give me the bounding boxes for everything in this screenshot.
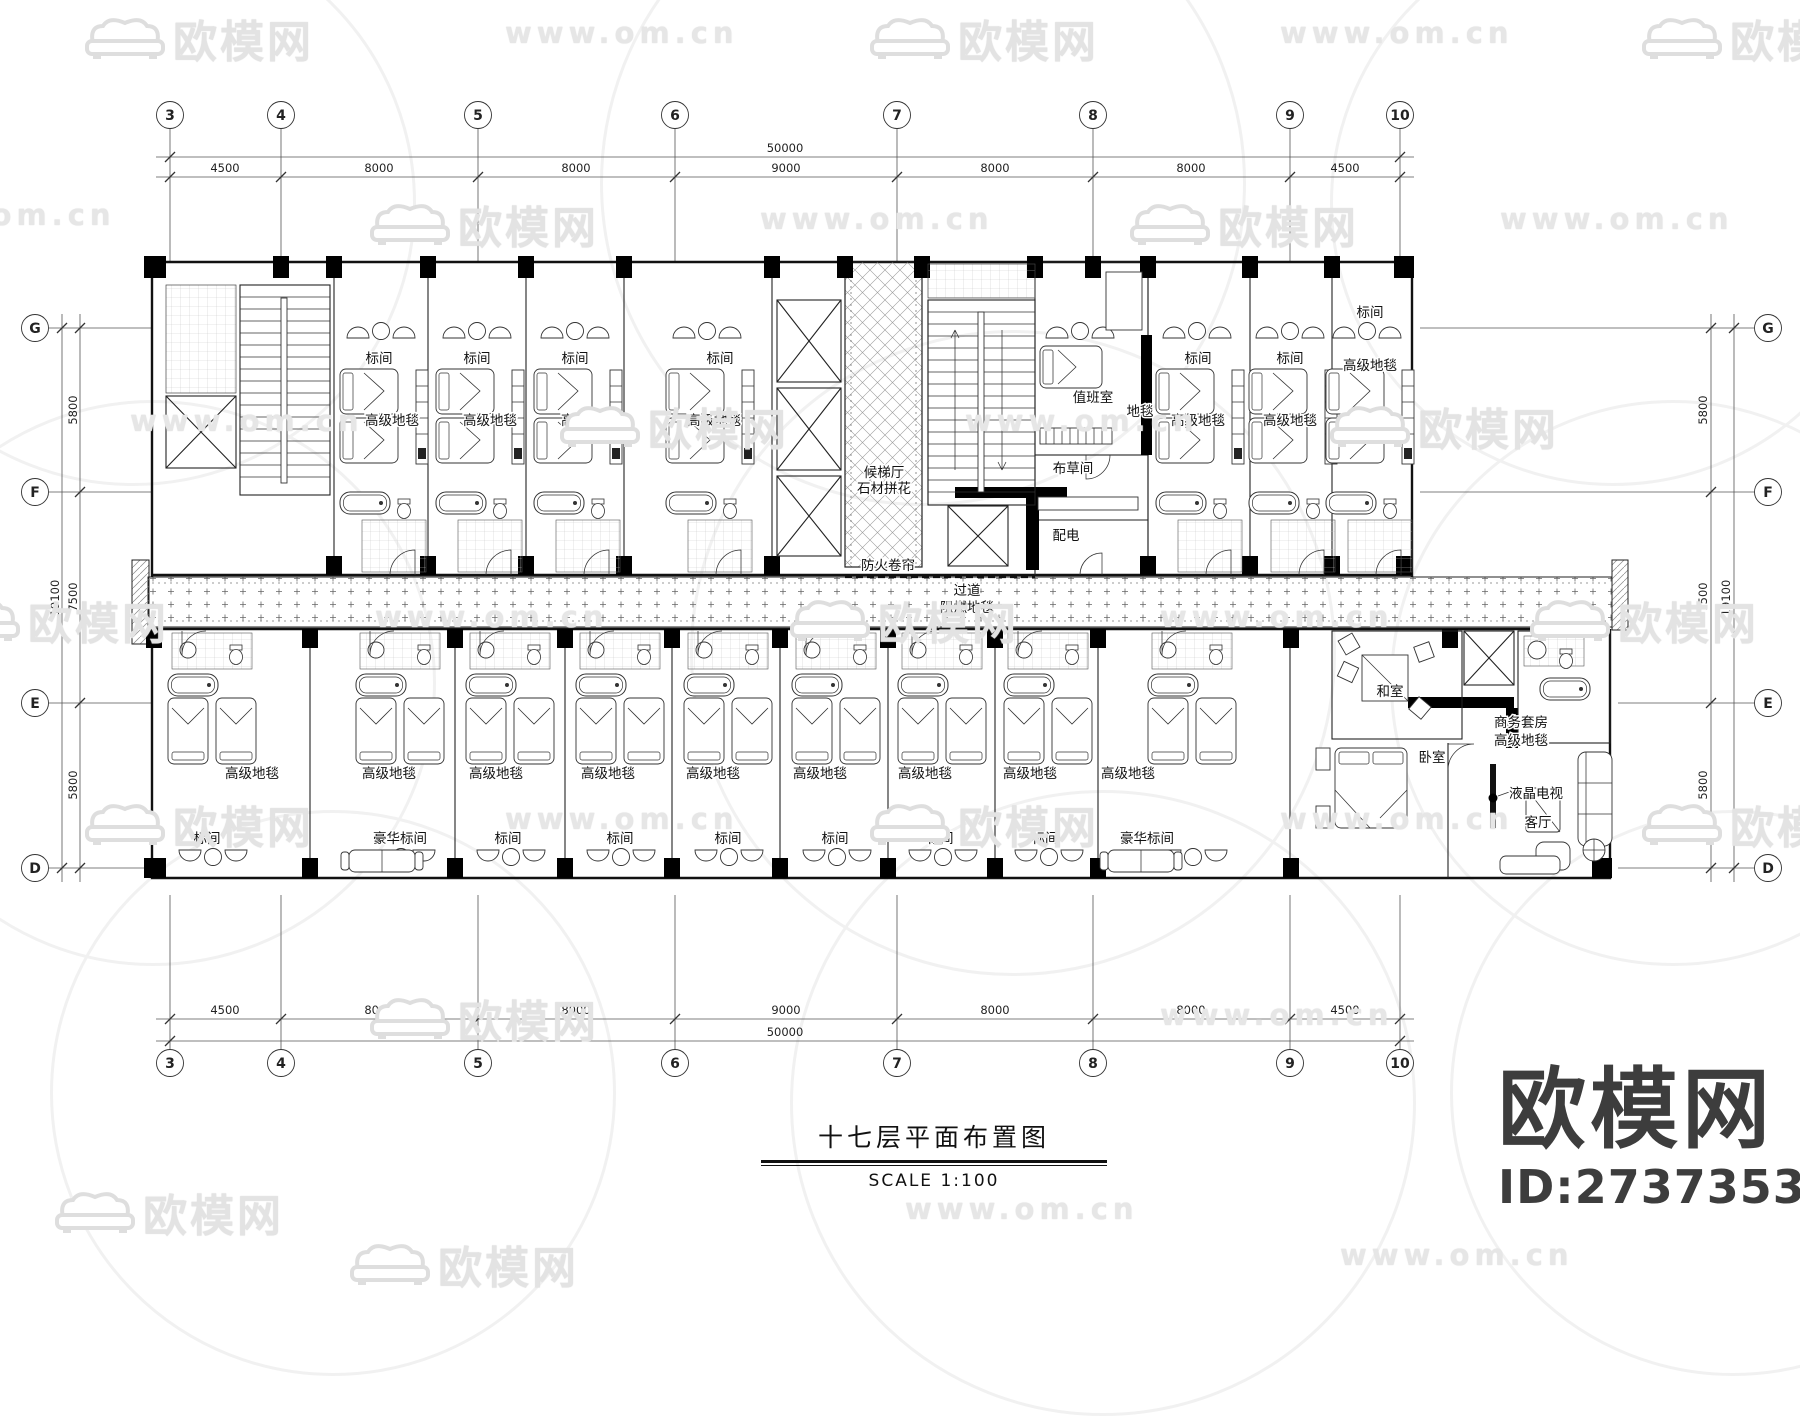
svg-text:9: 9: [1285, 108, 1295, 124]
svg-text:8000: 8000: [1176, 161, 1205, 175]
lower-rooms: [168, 631, 1236, 872]
svg-text:高级地毯: 高级地毯: [898, 765, 952, 782]
svg-text:客厅: 客厅: [1525, 814, 1552, 831]
drawing-title: 十七层平面布置图: [753, 1118, 1115, 1154]
svg-text:10: 10: [1390, 108, 1410, 124]
title-underline-thick: [761, 1160, 1107, 1163]
svg-text:卧室: 卧室: [1419, 749, 1446, 766]
svg-text:4500: 4500: [1330, 161, 1359, 175]
svg-text:8000: 8000: [561, 161, 590, 175]
drawing-title-block: 十七层平面布置图 SCALE 1:100: [753, 1118, 1115, 1191]
drawing-scale: SCALE 1:100: [753, 1171, 1115, 1191]
site-logo: 欧模网 ID:2737353: [1498, 1066, 1800, 1210]
svg-text:标间: 标间: [366, 351, 393, 367]
title-underline-thin: [761, 1165, 1107, 1166]
svg-text:E: E: [30, 696, 40, 712]
svg-text:高级地毯: 高级地毯: [1263, 412, 1317, 429]
svg-text:标间: 标间: [715, 831, 742, 847]
svg-text:高级地毯: 高级地毯: [581, 765, 635, 782]
svg-text:高级地毯: 高级地毯: [463, 412, 517, 429]
svg-text:9000: 9000: [771, 1003, 800, 1017]
svg-text:4500: 4500: [210, 1003, 239, 1017]
svg-text:标间: 标间: [1185, 351, 1212, 367]
svg-text:高级地毯: 高级地毯: [1494, 732, 1548, 749]
svg-text:G: G: [1762, 321, 1774, 337]
svg-text:高级地毯: 高级地毯: [362, 765, 416, 782]
business-suite: [1316, 631, 1612, 878]
svg-text:标间: 标间: [495, 831, 522, 847]
svg-text:D: D: [1762, 861, 1774, 877]
svg-text:3: 3: [165, 1056, 175, 1072]
svg-text:防火卷帘: 防火卷帘: [861, 558, 915, 574]
svg-text:标间: 标间: [707, 351, 734, 367]
svg-text:3: 3: [165, 108, 175, 124]
svg-text:标间: 标间: [607, 831, 634, 847]
svg-text:5800: 5800: [66, 395, 80, 424]
svg-text:候梯厅: 候梯厅: [864, 465, 905, 481]
svg-text:4: 4: [276, 108, 286, 124]
svg-text:6: 6: [670, 108, 680, 124]
svg-text:标间: 标间: [927, 831, 954, 847]
svg-text:配电: 配电: [1053, 528, 1080, 544]
svg-text:高级地毯: 高级地毯: [687, 412, 741, 429]
svg-text:商务套房: 商务套房: [1494, 715, 1548, 731]
svg-text:E: E: [1763, 696, 1773, 712]
svg-text:标间: 标间: [1032, 831, 1059, 847]
svg-text:8000: 8000: [980, 161, 1009, 175]
svg-text:高级地毯: 高级地毯: [793, 765, 847, 782]
svg-text:19100: 19100: [48, 580, 62, 617]
svg-text:8000: 8000: [364, 161, 393, 175]
svg-text:6: 6: [670, 1056, 680, 1072]
svg-text:7500: 7500: [66, 582, 80, 611]
svg-text:阻燃地毯: 阻燃地毯: [940, 599, 994, 616]
svg-text:高级地毯: 高级地毯: [365, 412, 419, 429]
svg-text:高级地毯: 高级地毯: [686, 765, 740, 782]
svg-text:高级地毯: 高级地毯: [225, 765, 279, 782]
svg-text:G: G: [29, 321, 41, 337]
svg-text:高级地毯: 高级地毯: [1343, 357, 1397, 374]
svg-text:标间: 标间: [822, 831, 849, 847]
svg-text:50000: 50000: [767, 1025, 804, 1039]
svg-text:4: 4: [276, 1056, 286, 1072]
svg-text:8000: 8000: [1176, 1003, 1205, 1017]
svg-text:F: F: [1763, 485, 1773, 501]
svg-text:高级地毯: 高级地毯: [1003, 765, 1057, 782]
svg-text:标间: 标间: [1277, 351, 1304, 367]
svg-text:9: 9: [1285, 1056, 1295, 1072]
svg-text:和室: 和室: [1377, 683, 1404, 700]
svg-text:8: 8: [1088, 108, 1098, 124]
svg-text:8000: 8000: [364, 1003, 393, 1017]
svg-text:19100: 19100: [1719, 580, 1733, 617]
svg-text:地毯: 地毯: [1127, 404, 1155, 420]
svg-text:豪华标间: 豪华标间: [373, 831, 427, 847]
svg-text:5: 5: [473, 108, 483, 124]
svg-text:4500: 4500: [210, 161, 239, 175]
svg-text:过道: 过道: [954, 583, 981, 599]
svg-text:F: F: [30, 485, 40, 501]
svg-text:50000: 50000: [767, 141, 804, 155]
svg-text:7: 7: [892, 1056, 902, 1072]
svg-text:5: 5: [473, 1056, 483, 1072]
svg-text:高级地毯: 高级地毯: [561, 412, 615, 429]
svg-text:豪华标间: 豪华标间: [1120, 831, 1174, 847]
svg-text:标间: 标间: [562, 351, 589, 367]
svg-text:高级地毯: 高级地毯: [1171, 412, 1225, 429]
svg-text:8000: 8000: [561, 1003, 590, 1017]
svg-text:布草间: 布草间: [1053, 461, 1094, 477]
svg-text:5800: 5800: [1696, 395, 1710, 424]
svg-text:7500: 7500: [1696, 582, 1710, 611]
svg-text:标间: 标间: [1357, 305, 1384, 321]
site-logo-name: 欧模网: [1498, 1066, 1800, 1154]
svg-text:9000: 9000: [771, 161, 800, 175]
svg-text:5800: 5800: [66, 770, 80, 799]
svg-text:标间: 标间: [464, 351, 491, 367]
model-id: ID:2737353: [1498, 1164, 1800, 1210]
svg-text:10: 10: [1390, 1056, 1410, 1072]
svg-text:8: 8: [1088, 1056, 1098, 1072]
svg-text:5800: 5800: [1696, 770, 1710, 799]
svg-text:值班室: 值班室: [1073, 389, 1114, 406]
svg-text:4500: 4500: [1330, 1003, 1359, 1017]
svg-text:8000: 8000: [980, 1003, 1009, 1017]
cad-viewer-page: { "watermark": { "brand": "欧模网", "url": …: [0, 0, 1800, 1279]
svg-text:石材拼花: 石材拼花: [857, 481, 911, 497]
svg-text:高级地毯: 高级地毯: [469, 765, 523, 782]
svg-text:7: 7: [892, 108, 902, 124]
svg-text:标间: 标间: [194, 831, 221, 847]
svg-text:D: D: [29, 861, 41, 877]
svg-text:液晶电视: 液晶电视: [1509, 786, 1563, 802]
svg-text:高级地毯: 高级地毯: [1101, 765, 1155, 782]
